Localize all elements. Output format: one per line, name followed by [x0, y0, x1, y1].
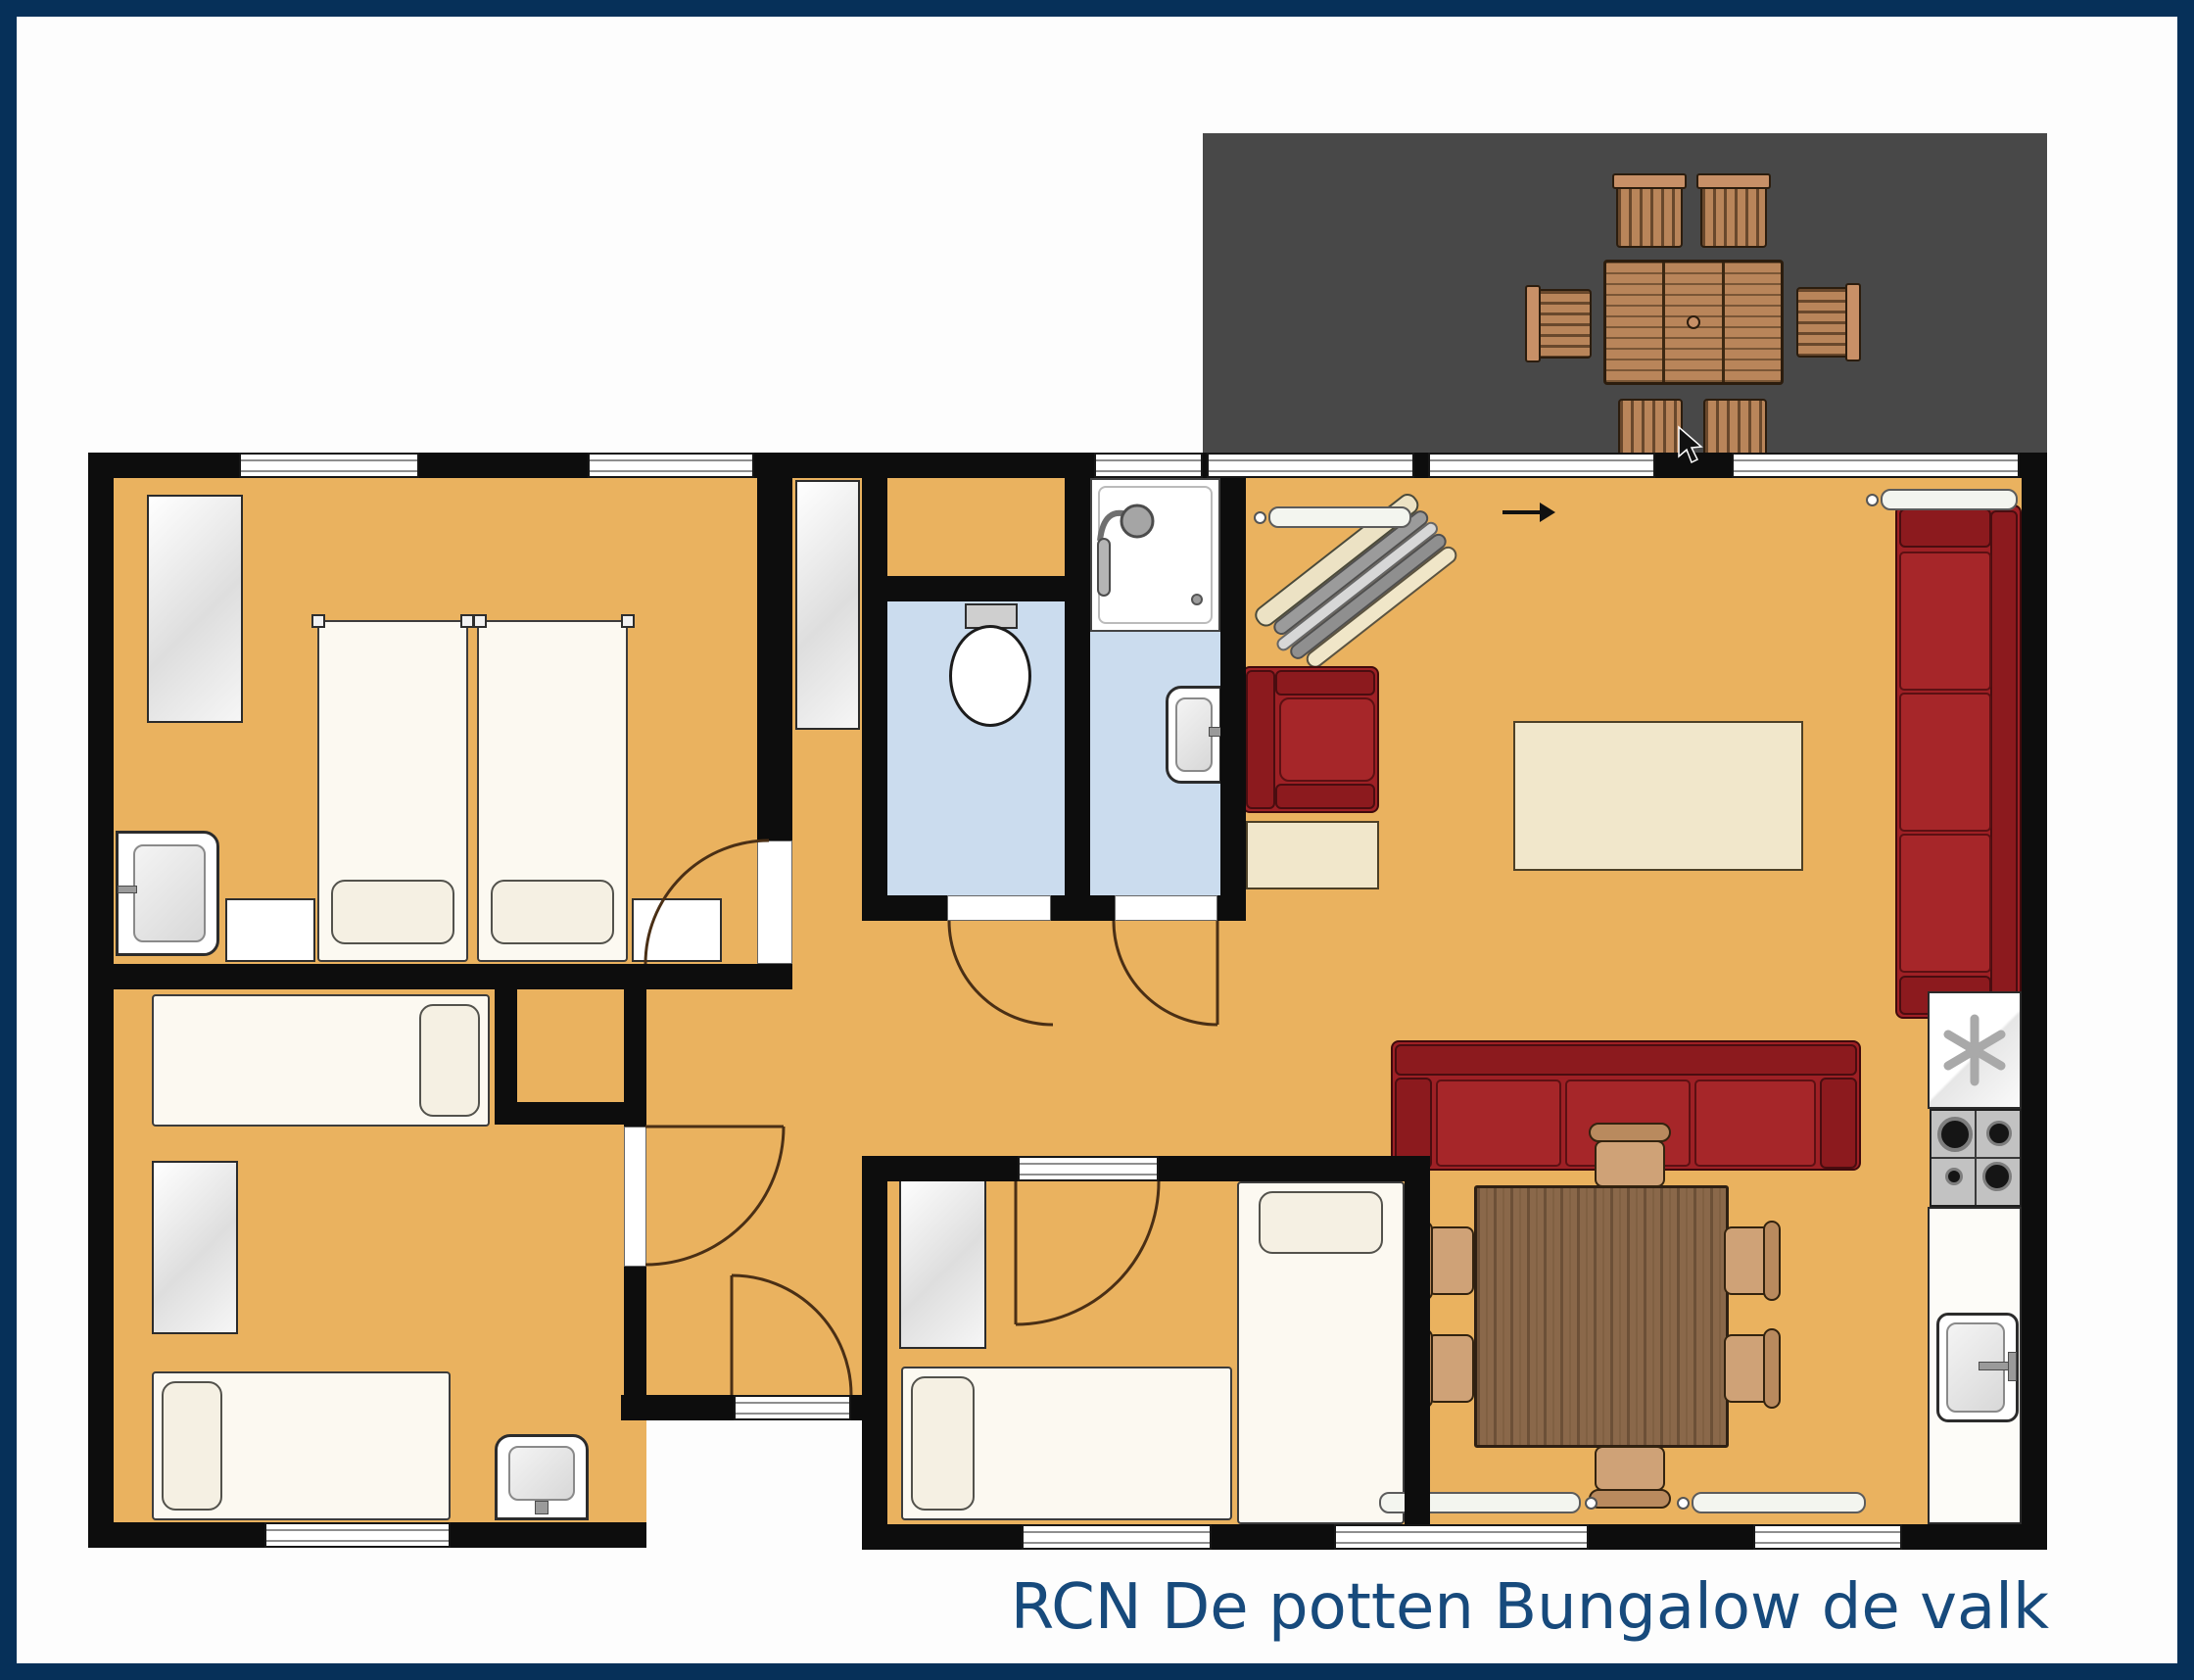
mouse-cursor-icon — [1677, 425, 1712, 466]
plan-canvas: RCN De potten Bungalow de valk — [17, 17, 2177, 1663]
floorplan: RCN De potten Bungalow de valk — [0, 0, 2194, 1680]
door-swing-arcs — [0, 0, 2194, 1680]
page-frame: RCN De potten Bungalow de valk — [0, 0, 2194, 1680]
plan-title: RCN De potten Bungalow de valk — [1011, 1571, 2049, 1644]
entrance-arrow-icon — [1499, 498, 1557, 527]
